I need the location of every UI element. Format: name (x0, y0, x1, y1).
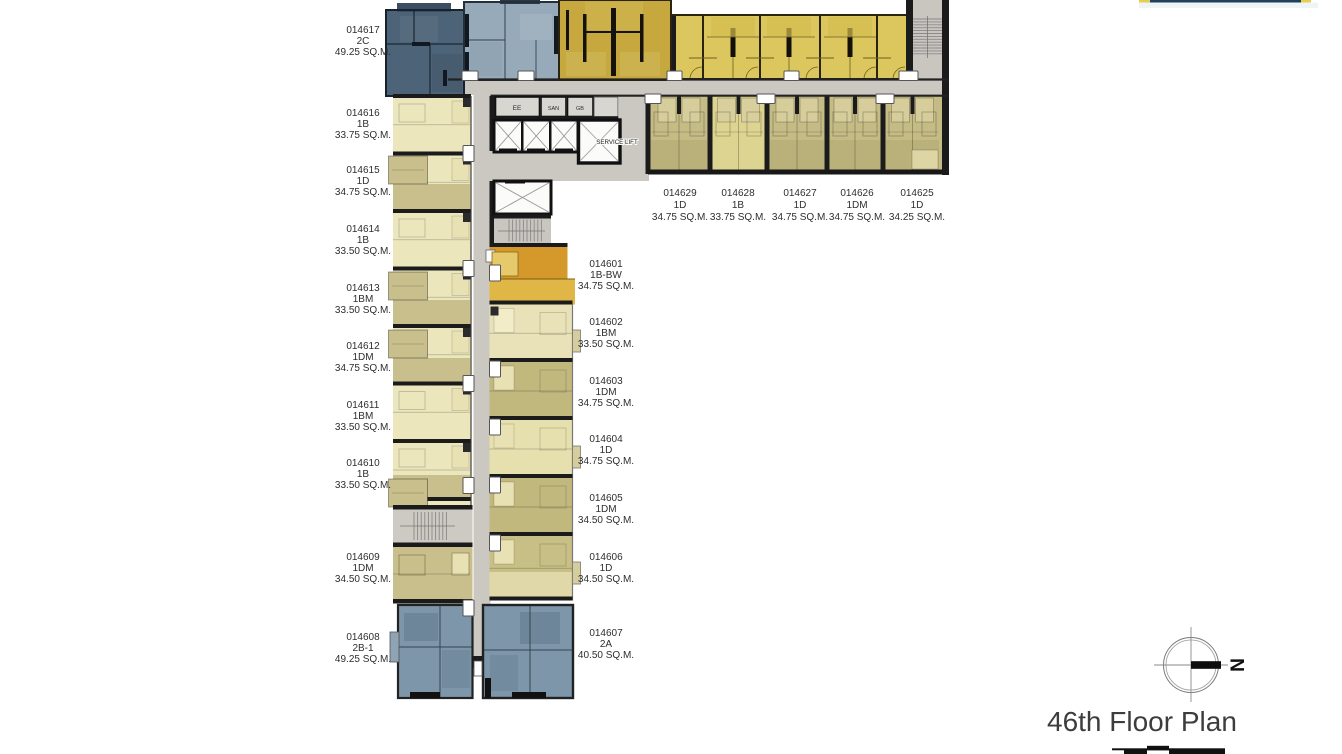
svg-text:014626: 014626 (840, 188, 874, 199)
svg-text:1B: 1B (357, 119, 370, 130)
svg-text:33.50 SQ.M.: 33.50 SQ.M. (335, 480, 391, 491)
svg-text:014615: 014615 (346, 165, 380, 176)
svg-text:1D: 1D (600, 445, 613, 456)
svg-text:1D: 1D (911, 200, 924, 211)
svg-text:33.50 SQ.M.: 33.50 SQ.M. (578, 339, 634, 350)
svg-text:34.50 SQ.M.: 34.50 SQ.M. (335, 574, 391, 585)
svg-text:014629: 014629 (663, 188, 697, 199)
svg-text:1B: 1B (732, 200, 745, 211)
svg-text:SERVICE LIFT: SERVICE LIFT (596, 139, 638, 146)
svg-text:1BM: 1BM (596, 328, 617, 339)
svg-text:1B: 1B (357, 469, 370, 480)
svg-text:33.75 SQ.M.: 33.75 SQ.M. (710, 212, 766, 223)
svg-text:014612: 014612 (346, 341, 380, 352)
svg-text:1B-BW: 1B-BW (590, 270, 622, 281)
svg-text:014607: 014607 (589, 628, 623, 639)
svg-text:GB: GB (576, 106, 584, 112)
svg-text:014625: 014625 (900, 188, 934, 199)
svg-text:014608: 014608 (346, 632, 380, 643)
svg-text:1D: 1D (600, 563, 613, 574)
svg-text:34.75 SQ.M.: 34.75 SQ.M. (335, 187, 391, 198)
svg-text:1DM: 1DM (846, 200, 867, 211)
svg-text:014610: 014610 (346, 458, 380, 469)
svg-text:49.25 SQ.M.: 49.25 SQ.M. (335, 47, 391, 58)
svg-text:1DM: 1DM (352, 352, 373, 363)
svg-text:EE: EE (513, 105, 522, 112)
svg-text:49.25 SQ.M.: 49.25 SQ.M. (335, 654, 391, 665)
svg-text:014609: 014609 (346, 552, 380, 563)
svg-text:1D: 1D (794, 200, 807, 211)
svg-text:014627: 014627 (783, 188, 817, 199)
svg-text:34.75 SQ.M.: 34.75 SQ.M. (829, 212, 885, 223)
svg-text:014603: 014603 (589, 376, 623, 387)
svg-text:1DM: 1DM (595, 504, 616, 515)
svg-text:40.50 SQ.M.: 40.50 SQ.M. (578, 650, 634, 661)
svg-text:014616: 014616 (346, 108, 380, 119)
svg-text:1D: 1D (674, 200, 687, 211)
svg-text:1D: 1D (357, 176, 370, 187)
svg-text:014628: 014628 (721, 188, 755, 199)
svg-text:014614: 014614 (346, 224, 380, 235)
svg-text:34.75 SQ.M.: 34.75 SQ.M. (772, 212, 828, 223)
svg-text:014611: 014611 (347, 400, 380, 411)
svg-text:014601: 014601 (589, 259, 623, 270)
svg-text:34.75 SQ.M.: 34.75 SQ.M. (578, 456, 634, 467)
svg-text:1BM: 1BM (353, 411, 374, 422)
svg-text:014604: 014604 (589, 434, 623, 445)
svg-text:N: N (1226, 658, 1247, 672)
svg-text:34.75 SQ.M.: 34.75 SQ.M. (652, 212, 708, 223)
svg-text:2B-1: 2B-1 (352, 643, 374, 654)
svg-text:014613: 014613 (346, 283, 380, 294)
svg-text:34.50 SQ.M.: 34.50 SQ.M. (578, 515, 634, 526)
svg-text:34.75 SQ.M.: 34.75 SQ.M. (578, 398, 634, 409)
svg-text:46th Floor Plan: 46th Floor Plan (1047, 706, 1237, 737)
svg-text:014605: 014605 (589, 493, 623, 504)
svg-text:33.50 SQ.M.: 33.50 SQ.M. (335, 422, 391, 433)
svg-text:2C: 2C (357, 36, 370, 47)
svg-text:014606: 014606 (589, 552, 623, 563)
svg-text:34.75 SQ.M.: 34.75 SQ.M. (335, 363, 391, 374)
svg-text:1DM: 1DM (352, 563, 373, 574)
svg-text:34.75 SQ.M.: 34.75 SQ.M. (578, 281, 634, 292)
svg-text:33.75 SQ.M.: 33.75 SQ.M. (335, 130, 391, 141)
svg-text:34.50 SQ.M.: 34.50 SQ.M. (578, 574, 634, 585)
svg-text:1DM: 1DM (595, 387, 616, 398)
svg-text:34.25 SQ.M.: 34.25 SQ.M. (889, 212, 945, 223)
svg-text:SAN: SAN (548, 106, 559, 112)
svg-text:33.50 SQ.M.: 33.50 SQ.M. (335, 246, 391, 257)
svg-text:2A: 2A (600, 639, 613, 650)
svg-text:014602: 014602 (589, 317, 623, 328)
svg-text:014617: 014617 (346, 25, 380, 36)
svg-text:1B: 1B (357, 235, 370, 246)
svg-text:1BM: 1BM (353, 294, 374, 305)
svg-text:33.50 SQ.M.: 33.50 SQ.M. (335, 305, 391, 316)
